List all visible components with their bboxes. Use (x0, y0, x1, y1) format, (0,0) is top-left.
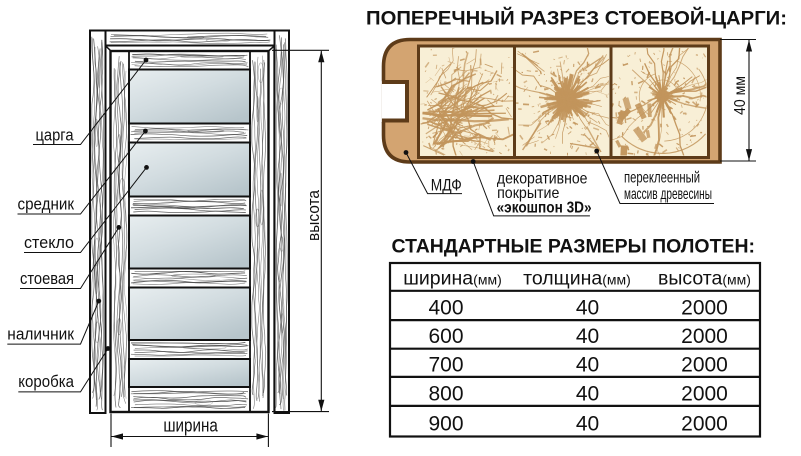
svg-text:400: 400 (428, 297, 463, 320)
svg-text:40: 40 (576, 354, 599, 377)
svg-text:40: 40 (576, 297, 599, 320)
svg-text:2000: 2000 (681, 354, 728, 377)
svg-text:2000: 2000 (681, 325, 728, 348)
svg-text:массив древесины: массив древесины (624, 186, 712, 203)
svg-text:40: 40 (576, 325, 599, 348)
svg-text:толщина(мм): толщина(мм) (523, 268, 631, 290)
svg-text:800: 800 (428, 382, 463, 405)
svg-text:СТАНДАРТНЫЕ РАЗМЕРЫ ПОЛОТЕН:: СТАНДАРТНЫЕ РАЗМЕРЫ ПОЛОТЕН: (392, 235, 756, 257)
svg-text:наличник: наличник (7, 325, 74, 344)
svg-text:МДФ: МДФ (431, 176, 462, 195)
svg-text:царга: царга (36, 126, 74, 145)
svg-text:700: 700 (428, 354, 463, 377)
svg-text:2000: 2000 (681, 297, 728, 320)
svg-text:2000: 2000 (681, 412, 728, 435)
svg-text:40 мм: 40 мм (732, 76, 749, 115)
svg-text:40: 40 (576, 382, 599, 405)
svg-text:600: 600 (428, 325, 463, 348)
svg-text:900: 900 (428, 412, 463, 435)
svg-text:ПОПЕРЕЧНЫЙ РАЗРЕЗ СТОЕВОЙ-ЦАРГ: ПОПЕРЕЧНЫЙ РАЗРЕЗ СТОЕВОЙ-ЦАРГИ: (366, 6, 787, 30)
svg-text:стоевая: стоевая (20, 269, 74, 288)
svg-text:«экошпон 3D»: «экошпон 3D» (497, 200, 592, 217)
svg-text:40: 40 (576, 412, 599, 435)
svg-text:2000: 2000 (681, 382, 728, 405)
svg-text:стекло: стекло (24, 233, 74, 252)
svg-text:средник: средник (18, 195, 75, 214)
svg-text:переклеенный: переклеенный (624, 170, 700, 187)
svg-text:ширина: ширина (163, 416, 218, 436)
svg-text:высота(мм): высота(мм) (658, 268, 751, 290)
svg-text:коробка: коробка (18, 372, 74, 391)
svg-text:высота: высота (304, 190, 323, 241)
svg-text:ширина(мм): ширина(мм) (403, 268, 501, 290)
